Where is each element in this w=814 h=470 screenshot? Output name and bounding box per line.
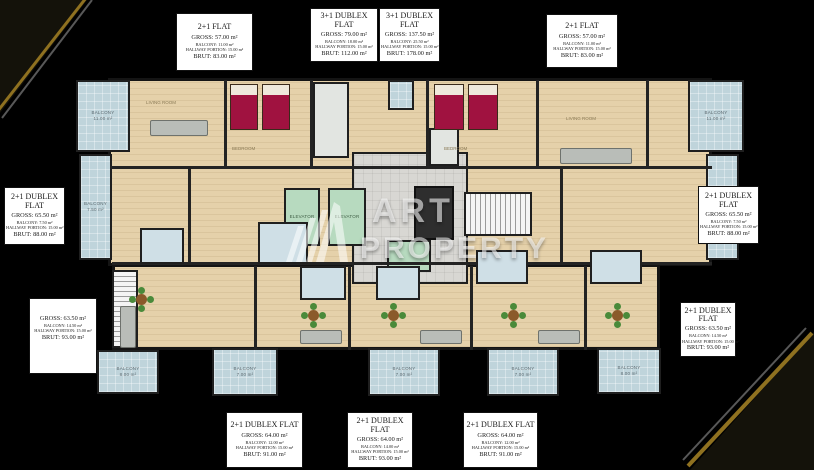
flat-gross: GROSS: 79.00 m² — [312, 31, 376, 39]
flat-label-top-left: 2+1 FLAT GROSS: 57.00 m² BALCONY: 11.00 … — [176, 13, 253, 71]
flat-title: 3+1 DUBLEX FLAT — [312, 12, 376, 29]
flat-title: 2+1 FLAT — [548, 22, 616, 30]
flat-brut: BRUT: 88.00 m² — [6, 231, 63, 239]
flat-brut: BRUT: 83.00 m² — [548, 52, 616, 60]
flat-brut: BRUT: 178.00 m² — [381, 50, 438, 58]
flat-gross: GROSS: 63.50 m² — [31, 315, 95, 323]
flat-label-bottom-right: 2+1 DUBLEX FLAT GROSS: 64.00 m² BALCONY:… — [463, 412, 538, 468]
flat-gross: GROSS: 64.00 m² — [228, 432, 301, 440]
floorplan-advert-page: { "watermark": { "line1": "ART", "line2"… — [0, 0, 814, 470]
flat-title: 2+1 FLAT — [178, 23, 251, 31]
flat-label-top-center-right: 3+1 DUBLEX FLAT GROSS: 137.50 m² BALCONY… — [379, 8, 440, 62]
flat-brut: BRUT: 93.00 m² — [349, 455, 411, 463]
flat-brut: BRUT: 91.00 m² — [465, 451, 536, 459]
flat-gross: GROSS: 65.50 m² — [700, 211, 757, 219]
flat-title: 2+1 DUBLEX FLAT — [228, 421, 301, 429]
flat-label-top-right: 2+1 FLAT GROSS: 57.00 m² BALCONY: 11.00 … — [546, 14, 618, 68]
flat-brut: BRUT: 83.00 m² — [178, 53, 251, 61]
flat-gross: GROSS: 64.00 m² — [349, 436, 411, 444]
flat-title: 2+1 DUBLEX FLAT — [349, 417, 411, 434]
flat-brut: BRUT: 93.00 m² — [31, 334, 95, 342]
flat-gross: GROSS: 64.00 m² — [465, 432, 536, 440]
flat-label-lower-left: GROSS: 63.50 m² BALCONY: 14.50 m² HALLWA… — [29, 298, 97, 374]
flat-gross: GROSS: 63.50 m² — [682, 325, 734, 333]
corner-triangle-top-left — [0, 0, 87, 113]
flat-gross: GROSS: 137.50 m² — [381, 31, 438, 39]
flat-brut: BRUT: 88.00 m² — [700, 230, 757, 238]
flat-brut: BRUT: 91.00 m² — [228, 451, 301, 459]
flat-label-middle-left: 2+1 DUBLEX FLAT GROSS: 65.50 m² BALCONY:… — [4, 187, 65, 245]
flat-title: 2+1 DUBLEX FLAT — [700, 192, 757, 209]
flat-title: 2+1 DUBLEX FLAT — [6, 193, 63, 210]
flat-gross: GROSS: 65.50 m² — [6, 212, 63, 220]
flat-label-bottom-center: 2+1 DUBLEX FLAT GROSS: 64.00 m² BALCONY:… — [347, 412, 413, 468]
flat-label-top-center-left: 3+1 DUBLEX FLAT GROSS: 79.00 m² BALCONY:… — [310, 8, 378, 62]
corner-decoration — [0, 0, 814, 470]
flat-title: 2+1 DUBLEX FLAT — [682, 307, 734, 324]
flat-title: 3+1 DUBLEX FLAT — [381, 12, 438, 29]
flat-gross: GROSS: 57.00 m² — [548, 33, 616, 41]
flat-title: 2+1 DUBLEX FLAT — [465, 421, 536, 429]
flat-brut: BRUT: 93.00 m² — [682, 344, 734, 352]
flat-label-bottom-left: 2+1 DUBLEX FLAT GROSS: 64.00 m² BALCONY:… — [226, 412, 303, 468]
flat-brut: BRUT: 112.00 m² — [312, 50, 376, 58]
flat-gross: GROSS: 57.00 m² — [178, 34, 251, 42]
flat-label-middle-right: 2+1 DUBLEX FLAT GROSS: 65.50 m² BALCONY:… — [698, 186, 759, 244]
flat-label-lower-right: 2+1 DUBLEX FLAT GROSS: 63.50 m² BALCONY:… — [680, 302, 736, 357]
